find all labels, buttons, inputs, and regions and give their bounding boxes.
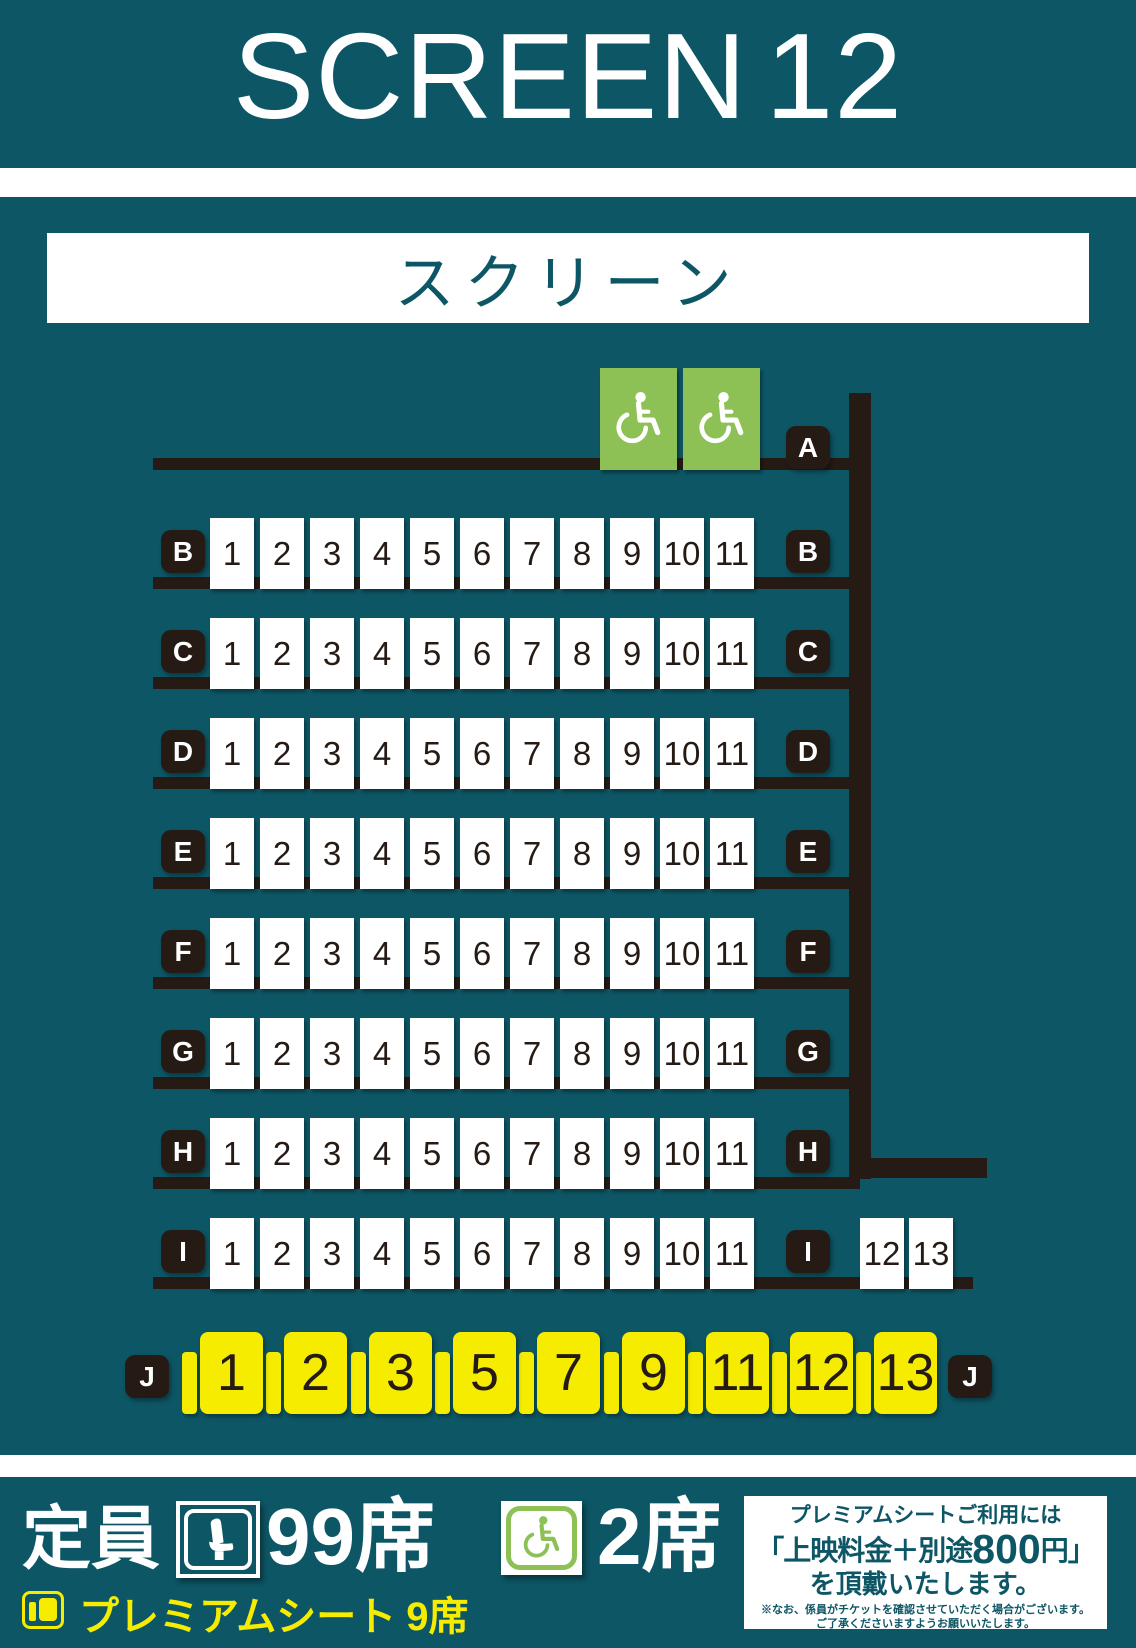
row-badge-H-left: H bbox=[161, 1130, 205, 1173]
row-badge-G-left: G bbox=[161, 1030, 205, 1073]
seat-C-5[interactable]: 5 bbox=[410, 618, 454, 689]
price-number: 800 bbox=[972, 1526, 1040, 1572]
wheelchair-icon-inner bbox=[506, 1506, 577, 1570]
seat-J-5[interactable]: 5 bbox=[453, 1332, 516, 1414]
wheelchair-glyph-icon bbox=[696, 389, 748, 449]
seat-G-10[interactable]: 10 bbox=[660, 1018, 704, 1089]
row-badge-G-right: G bbox=[786, 1030, 830, 1073]
seat-G-6[interactable]: 6 bbox=[460, 1018, 504, 1089]
seat-icon-inner bbox=[184, 1509, 252, 1570]
seat-E-7[interactable]: 7 bbox=[510, 818, 554, 889]
row-badge-B-left: B bbox=[161, 530, 205, 573]
premium-armrest-7 bbox=[688, 1352, 703, 1414]
seat-H-10[interactable]: 10 bbox=[660, 1118, 704, 1189]
wheelchair-count: 2席 bbox=[597, 1497, 722, 1577]
seat-G-4[interactable]: 4 bbox=[360, 1018, 404, 1089]
seat-G-7[interactable]: 7 bbox=[510, 1018, 554, 1089]
row-badge-C-right: C bbox=[786, 630, 830, 673]
seat-G-5[interactable]: 5 bbox=[410, 1018, 454, 1089]
seat-I-9[interactable]: 9 bbox=[610, 1218, 654, 1289]
seat-H-3[interactable]: 3 bbox=[310, 1118, 354, 1189]
seat-I-11[interactable]: 11 bbox=[710, 1218, 754, 1289]
row-badge-F-right: F bbox=[786, 930, 830, 973]
seat-C-2[interactable]: 2 bbox=[260, 618, 304, 689]
info-note-2: ご了承くださいますようお願いいたします。 bbox=[744, 1617, 1107, 1631]
price-prefix: 「上映料金＋別途 bbox=[756, 1535, 972, 1566]
seat-C-7[interactable]: 7 bbox=[510, 618, 554, 689]
seat-B-9[interactable]: 9 bbox=[610, 518, 654, 589]
seat-J-12[interactable]: 12 bbox=[790, 1332, 853, 1414]
seat-B-6[interactable]: 6 bbox=[460, 518, 504, 589]
seat-F-7[interactable]: 7 bbox=[510, 918, 554, 989]
seat-H-6[interactable]: 6 bbox=[460, 1118, 504, 1189]
seat-H-7[interactable]: 7 bbox=[510, 1118, 554, 1189]
seat-D-10[interactable]: 10 bbox=[660, 718, 704, 789]
seat-D-4[interactable]: 4 bbox=[360, 718, 404, 789]
seat-C-6[interactable]: 6 bbox=[460, 618, 504, 689]
seat-D-11[interactable]: 11 bbox=[710, 718, 754, 789]
seat-I-7[interactable]: 7 bbox=[510, 1218, 554, 1289]
row-badge-J-right: J bbox=[948, 1355, 992, 1398]
seat-E-1[interactable]: 1 bbox=[210, 818, 254, 889]
row-badge-C-left: C bbox=[161, 630, 205, 673]
seat-B-10[interactable]: 10 bbox=[660, 518, 704, 589]
wall-right-arm bbox=[849, 1158, 987, 1178]
seat-D-1[interactable]: 1 bbox=[210, 718, 254, 789]
seat-H-9[interactable]: 9 bbox=[610, 1118, 654, 1189]
seat-G-9[interactable]: 9 bbox=[610, 1018, 654, 1089]
info-line-1: プレミアムシートご利用には bbox=[744, 1503, 1107, 1529]
premium-seat-icon-armrest bbox=[29, 1602, 36, 1621]
seat-H-5[interactable]: 5 bbox=[410, 1118, 454, 1189]
seat-I-12[interactable]: 12 bbox=[860, 1218, 904, 1289]
seat-J-9[interactable]: 9 bbox=[622, 1332, 685, 1414]
seat-B-3[interactable]: 3 bbox=[310, 518, 354, 589]
seat-C-9[interactable]: 9 bbox=[610, 618, 654, 689]
premium-armrest-6 bbox=[604, 1352, 619, 1414]
seat-H-8[interactable]: 8 bbox=[560, 1118, 604, 1189]
seat-J-13[interactable]: 13 bbox=[874, 1332, 937, 1414]
seat-I-3[interactable]: 3 bbox=[310, 1218, 354, 1289]
seat-E-9[interactable]: 9 bbox=[610, 818, 654, 889]
info-note-1: ※なお、係員がチケットを確認させていただく場合がございます。 bbox=[744, 1603, 1107, 1617]
seat-B-11[interactable]: 11 bbox=[710, 518, 754, 589]
seat-F-9[interactable]: 9 bbox=[610, 918, 654, 989]
seat-I-8[interactable]: 8 bbox=[560, 1218, 604, 1289]
seat-E-3[interactable]: 3 bbox=[310, 818, 354, 889]
seat-B-2[interactable]: 2 bbox=[260, 518, 304, 589]
seat-F-3[interactable]: 3 bbox=[310, 918, 354, 989]
seat-side-icon bbox=[194, 1516, 242, 1564]
divider-stripe-bottom bbox=[0, 1455, 1136, 1477]
row-badge-E-right: E bbox=[786, 830, 830, 873]
seat-G-3[interactable]: 3 bbox=[310, 1018, 354, 1089]
seat-G-11[interactable]: 11 bbox=[710, 1018, 754, 1089]
premium-info-box: プレミアムシートご利用には 「上映料金＋別途800円」 を頂戴いたします。 ※な… bbox=[744, 1496, 1107, 1629]
seat-B-4[interactable]: 4 bbox=[360, 518, 404, 589]
row-badge-I-right: I bbox=[786, 1230, 830, 1273]
seat-C-8[interactable]: 8 bbox=[560, 618, 604, 689]
seat-icon-frame bbox=[180, 1505, 256, 1574]
seat-C-3[interactable]: 3 bbox=[310, 618, 354, 689]
seat-C-4[interactable]: 4 bbox=[360, 618, 404, 689]
seat-I-5[interactable]: 5 bbox=[410, 1218, 454, 1289]
seat-A-wheelchair-1[interactable] bbox=[600, 368, 677, 470]
seat-J-3[interactable]: 3 bbox=[369, 1332, 432, 1414]
seat-E-11[interactable]: 11 bbox=[710, 818, 754, 889]
row-badge-F-left: F bbox=[161, 930, 205, 973]
premium-armrest-1 bbox=[182, 1352, 197, 1414]
info-line-price: 「上映料金＋別途800円」 bbox=[744, 1529, 1107, 1570]
row-badge-J-left: J bbox=[125, 1355, 169, 1398]
row-badge-A-right: A bbox=[786, 426, 830, 469]
premium-seat-icon-seat bbox=[39, 1598, 57, 1621]
row-badge-D-left: D bbox=[161, 730, 205, 773]
wheelchair-icon bbox=[501, 1501, 582, 1575]
wheelchair-glyph-icon bbox=[521, 1513, 563, 1563]
seat-E-10[interactable]: 10 bbox=[660, 818, 704, 889]
premium-armrest-9 bbox=[856, 1352, 871, 1414]
capacity-value: 99席 bbox=[266, 1497, 435, 1577]
seat-B-5[interactable]: 5 bbox=[410, 518, 454, 589]
seat-D-7[interactable]: 7 bbox=[510, 718, 554, 789]
seat-J-2[interactable]: 2 bbox=[284, 1332, 347, 1414]
seat-E-6[interactable]: 6 bbox=[460, 818, 504, 889]
seat-D-3[interactable]: 3 bbox=[310, 718, 354, 789]
wall-right-vertical bbox=[849, 393, 871, 1179]
row-badge-D-right: D bbox=[786, 730, 830, 773]
seat-F-8[interactable]: 8 bbox=[560, 918, 604, 989]
premium-armrest-8 bbox=[772, 1352, 787, 1414]
seat-E-8[interactable]: 8 bbox=[560, 818, 604, 889]
seat-E-5[interactable]: 5 bbox=[410, 818, 454, 889]
premium-seat-icon bbox=[22, 1591, 64, 1629]
seat-J-7[interactable]: 7 bbox=[537, 1332, 600, 1414]
seat-D-9[interactable]: 9 bbox=[610, 718, 654, 789]
seat-J-1[interactable]: 1 bbox=[200, 1332, 263, 1414]
premium-count: 9席 bbox=[406, 1597, 468, 1637]
seat-B-8[interactable]: 8 bbox=[560, 518, 604, 589]
seat-C-1[interactable]: 1 bbox=[210, 618, 254, 689]
seat-F-1[interactable]: 1 bbox=[210, 918, 254, 989]
seat-I-6[interactable]: 6 bbox=[460, 1218, 504, 1289]
seat-A-wheelchair-2[interactable] bbox=[683, 368, 760, 470]
premium-armrest-2 bbox=[266, 1352, 281, 1414]
premium-armrest-5 bbox=[519, 1352, 534, 1414]
seat-H-11[interactable]: 11 bbox=[710, 1118, 754, 1189]
premium-armrest-3 bbox=[351, 1352, 366, 1414]
seat-F-6[interactable]: 6 bbox=[460, 918, 504, 989]
row-badge-H-right: H bbox=[786, 1130, 830, 1173]
seat-I-13[interactable]: 13 bbox=[909, 1218, 953, 1289]
seat-D-2[interactable]: 2 bbox=[260, 718, 304, 789]
wheelchair-glyph-icon bbox=[613, 389, 665, 449]
seat-F-5[interactable]: 5 bbox=[410, 918, 454, 989]
seat-B-1[interactable]: 1 bbox=[210, 518, 254, 589]
capacity-label: 定員 bbox=[22, 1504, 160, 1573]
seat-F-11[interactable]: 11 bbox=[710, 918, 754, 989]
seat-B-7[interactable]: 7 bbox=[510, 518, 554, 589]
seat-C-10[interactable]: 10 bbox=[660, 618, 704, 689]
seat-I-1[interactable]: 1 bbox=[210, 1218, 254, 1289]
seat-icon bbox=[176, 1501, 260, 1578]
seat-G-1[interactable]: 1 bbox=[210, 1018, 254, 1089]
price-suffix: 円」 bbox=[1041, 1535, 1095, 1566]
seat-D-8[interactable]: 8 bbox=[560, 718, 604, 789]
seat-F-4[interactable]: 4 bbox=[360, 918, 404, 989]
seat-E-4[interactable]: 4 bbox=[360, 818, 404, 889]
info-line-3: を頂戴いたします。 bbox=[744, 1570, 1107, 1600]
row-badge-E-left: E bbox=[161, 830, 205, 873]
seat-I-2[interactable]: 2 bbox=[260, 1218, 304, 1289]
premium-label: プレミアムシート bbox=[79, 1597, 396, 1637]
seat-F-2[interactable]: 2 bbox=[260, 918, 304, 989]
seat-E-2[interactable]: 2 bbox=[260, 818, 304, 889]
seat-H-2[interactable]: 2 bbox=[260, 1118, 304, 1189]
seat-D-6[interactable]: 6 bbox=[460, 718, 504, 789]
seat-H-4[interactable]: 4 bbox=[360, 1118, 404, 1189]
seat-G-8[interactable]: 8 bbox=[560, 1018, 604, 1089]
seat-C-11[interactable]: 11 bbox=[710, 618, 754, 689]
seat-I-10[interactable]: 10 bbox=[660, 1218, 704, 1289]
seat-J-11[interactable]: 11 bbox=[706, 1332, 769, 1414]
premium-count-line: プレミアムシート 9席 bbox=[79, 1597, 468, 1637]
seat-F-10[interactable]: 10 bbox=[660, 918, 704, 989]
seat-D-5[interactable]: 5 bbox=[410, 718, 454, 789]
screen12-seat-map-page: SCREEN12 スクリーン ABB1234567891011CC1234567… bbox=[0, 0, 1136, 1648]
seat-H-1[interactable]: 1 bbox=[210, 1118, 254, 1189]
row-badge-I-left: I bbox=[161, 1230, 205, 1273]
seat-I-4[interactable]: 4 bbox=[360, 1218, 404, 1289]
premium-armrest-4 bbox=[435, 1352, 450, 1414]
row-badge-B-right: B bbox=[786, 530, 830, 573]
seat-G-2[interactable]: 2 bbox=[260, 1018, 304, 1089]
seat-map: ABB1234567891011CC1234567891011DD1234567… bbox=[0, 0, 1136, 1648]
